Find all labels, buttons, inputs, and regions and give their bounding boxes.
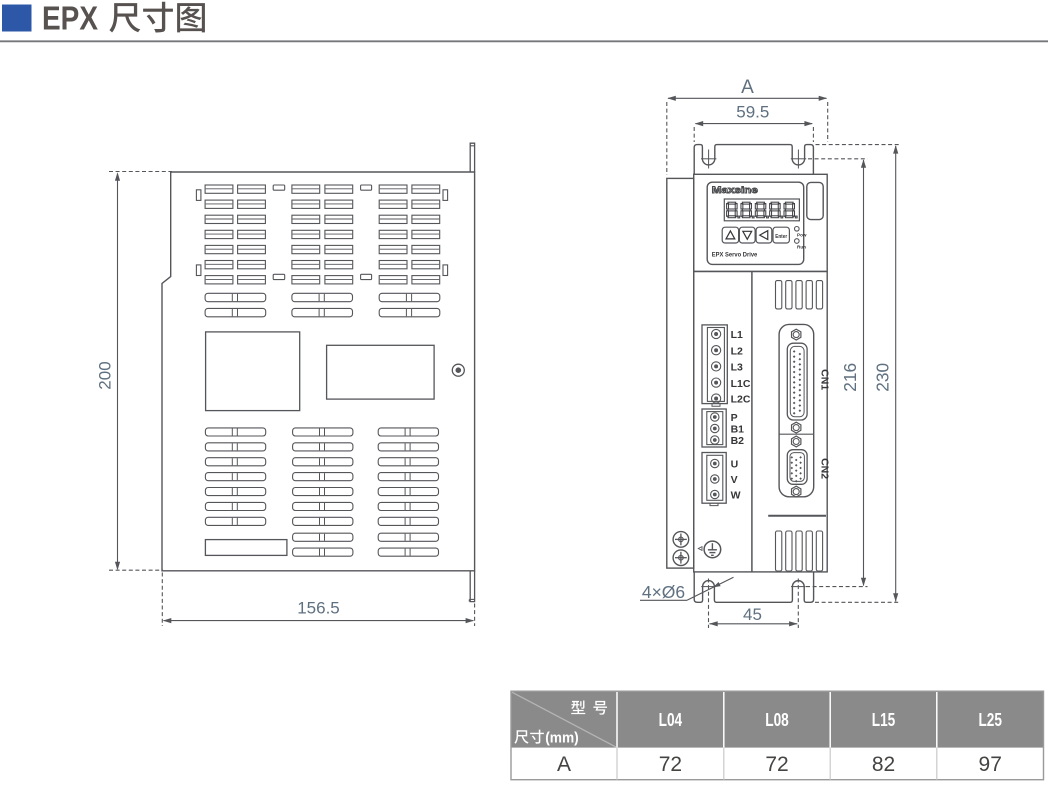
svg-text:EPX: EPX (42, 0, 98, 37)
svg-text:L3: L3 (731, 362, 743, 374)
svg-text:72: 72 (765, 753, 788, 776)
svg-text:B1: B1 (731, 424, 745, 436)
svg-text:216: 216 (840, 363, 860, 392)
svg-text:L2: L2 (731, 345, 743, 357)
svg-text:CN2: CN2 (819, 458, 831, 479)
svg-text:L2C: L2C (731, 394, 751, 406)
svg-text:97: 97 (979, 753, 1002, 776)
svg-text:L1C: L1C (731, 378, 751, 390)
svg-text:CN1: CN1 (819, 369, 831, 390)
svg-text:45: 45 (743, 605, 762, 624)
svg-text:Pow: Pow (797, 232, 807, 237)
svg-text:P: P (731, 412, 738, 424)
svg-text:L15: L15 (872, 709, 896, 730)
svg-text:82: 82 (872, 753, 895, 776)
svg-text:L25: L25 (978, 709, 1002, 730)
svg-text:U: U (731, 459, 739, 471)
svg-text:V: V (731, 474, 738, 486)
svg-text:72: 72 (659, 753, 682, 776)
svg-text:L08: L08 (765, 709, 789, 730)
svg-text:200: 200 (96, 361, 115, 389)
svg-text:59.5: 59.5 (736, 103, 769, 122)
svg-text:L1: L1 (731, 329, 743, 341)
svg-text:A: A (557, 753, 571, 776)
svg-text:(mm): (mm) (545, 729, 579, 746)
svg-text:Maxsine: Maxsine (712, 185, 758, 196)
svg-text:B2: B2 (731, 435, 745, 447)
svg-text:230: 230 (872, 363, 892, 392)
svg-text:L04: L04 (659, 709, 683, 730)
svg-text:A: A (741, 77, 754, 98)
svg-text:Enter: Enter (775, 234, 787, 240)
svg-text:W: W (731, 490, 741, 502)
svg-text:Run: Run (797, 245, 806, 250)
svg-text:EPX Servo Drive: EPX Servo Drive (712, 252, 758, 259)
svg-text:4×Ø6: 4×Ø6 (642, 582, 685, 602)
svg-text:156.5: 156.5 (297, 599, 340, 618)
